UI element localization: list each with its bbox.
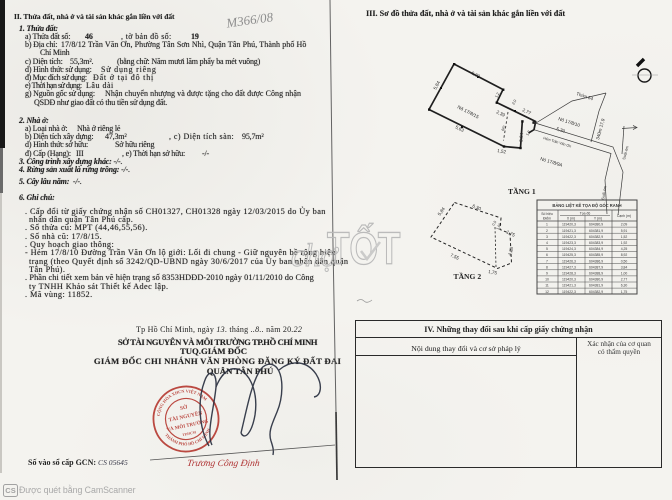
- svg-text:119420,3: 119420,3: [562, 278, 576, 282]
- svg-text:1,92: 1,92: [621, 241, 628, 245]
- svg-text:119421,3: 119421,3: [562, 284, 576, 288]
- svg-text:7,55: 7,55: [450, 252, 461, 260]
- svg-text:3,84: 3,84: [621, 265, 628, 269]
- svg-text:119428,3: 119428,3: [562, 272, 576, 276]
- svg-text:1,75: 1,75: [621, 290, 628, 294]
- svg-text:119420,3: 119420,3: [562, 223, 576, 227]
- svg-text:119427,3: 119427,3: [562, 265, 576, 269]
- svg-text:604386,9: 604386,9: [589, 259, 603, 263]
- svg-text:8,92: 8,92: [621, 253, 628, 257]
- svg-text:Nō 17/8/10: Nō 17/8/10: [558, 116, 581, 128]
- svg-text:2: 2: [546, 229, 548, 233]
- svg-text:119421,3: 119421,3: [562, 229, 576, 233]
- svg-text:1,52: 1,52: [497, 148, 507, 155]
- svg-text:604380,9: 604380,9: [589, 223, 603, 227]
- svg-text:1,75: 1,75: [488, 269, 498, 276]
- svg-text:SỞ: SỞ: [179, 402, 188, 411]
- svg-text:Suối 4m: Suối 4m: [622, 146, 629, 160]
- svg-text:0,50: 0,50: [621, 259, 628, 263]
- svg-text:119425,3: 119425,3: [562, 253, 576, 257]
- svg-text:Số hiệu: Số hiệu: [541, 212, 553, 216]
- svg-text:3,84: 3,84: [519, 132, 525, 142]
- svg-text:604382,9: 604382,9: [589, 235, 603, 239]
- svg-text:9: 9: [546, 272, 548, 276]
- svg-text:604380,9: 604380,9: [589, 278, 603, 282]
- svg-text:4: 4: [546, 241, 548, 245]
- svg-text:11: 11: [545, 284, 549, 288]
- svg-text:1,00: 1,00: [621, 272, 628, 276]
- svg-text:604381,9: 604381,9: [589, 284, 603, 288]
- svg-text:7: 7: [546, 259, 548, 263]
- svg-text:8: 8: [546, 265, 548, 269]
- svg-text:BẢNG LIỆT KÊ TỌA ĐỘ GÓC RANH: BẢNG LIỆT KÊ TỌA ĐỘ GÓC RANH: [552, 203, 621, 208]
- svg-text:4,25: 4,25: [621, 247, 628, 251]
- svg-text:119426,3: 119426,3: [562, 259, 576, 263]
- svg-text:Y (m): Y (m): [594, 217, 602, 221]
- svg-text:6: 6: [546, 253, 548, 257]
- svg-text:2,77: 2,77: [621, 278, 628, 282]
- svg-text:TỐT: TỐT: [327, 224, 400, 274]
- svg-text:10: 10: [545, 278, 549, 282]
- svg-text:6m: 6m: [501, 125, 506, 131]
- svg-text:5,30: 5,30: [556, 126, 566, 134]
- svg-text:5: 5: [546, 247, 548, 251]
- svg-text:604384,9: 604384,9: [589, 247, 603, 251]
- svg-text:Suối 4m: Suối 4m: [601, 186, 607, 200]
- svg-text:4,25: 4,25: [507, 246, 514, 256]
- svg-text:1,75: 1,75: [506, 229, 517, 237]
- svg-text:5,84: 5,84: [437, 206, 446, 217]
- svg-text:Điểm: Điểm: [543, 217, 551, 221]
- svg-text:Tọa độ: Tọa độ: [580, 212, 591, 216]
- svg-text:3: 3: [546, 235, 548, 239]
- svg-text:2,09: 2,09: [621, 223, 628, 227]
- svg-text:119424,3: 119424,3: [562, 247, 576, 251]
- svg-text:1,52: 1,52: [621, 235, 628, 239]
- svg-text:2,39: 2,39: [496, 109, 507, 118]
- svg-text:119422,3: 119422,3: [562, 235, 576, 239]
- svg-text:2,0: 2,0: [511, 99, 517, 106]
- svg-text:5,91: 5,91: [621, 229, 628, 233]
- svg-text:Cạnh (m): Cạnh (m): [617, 214, 631, 218]
- svg-text:TP.HCM: TP.HCM: [182, 430, 197, 437]
- svg-text:12: 12: [545, 290, 549, 294]
- svg-text:119423,3: 119423,3: [562, 241, 576, 245]
- svg-text:Nō 17/8/15: Nō 17/8/15: [456, 104, 480, 120]
- svg-text:604387,9: 604387,9: [589, 265, 603, 269]
- svg-text:6,30: 6,30: [621, 284, 628, 288]
- svg-text:604385,9: 604385,9: [589, 253, 603, 257]
- svg-text:604382,9: 604382,9: [589, 290, 603, 294]
- svg-text:Hẻm Trần Văn Ơn: Hẻm Trần Văn Ơn: [543, 136, 572, 148]
- svg-text:119422,3: 119422,3: [562, 290, 576, 294]
- svg-text:1: 1: [546, 223, 548, 227]
- svg-text:604388,9: 604388,9: [589, 272, 603, 276]
- svg-text:X (m): X (m): [567, 217, 575, 221]
- svg-text:M366/08: M366/08: [224, 9, 274, 31]
- svg-text:604381,9: 604381,9: [589, 229, 603, 233]
- svg-text:604383,9: 604383,9: [589, 241, 603, 245]
- svg-text:Nō 17/8/9A: Nō 17/8/9A: [540, 156, 564, 168]
